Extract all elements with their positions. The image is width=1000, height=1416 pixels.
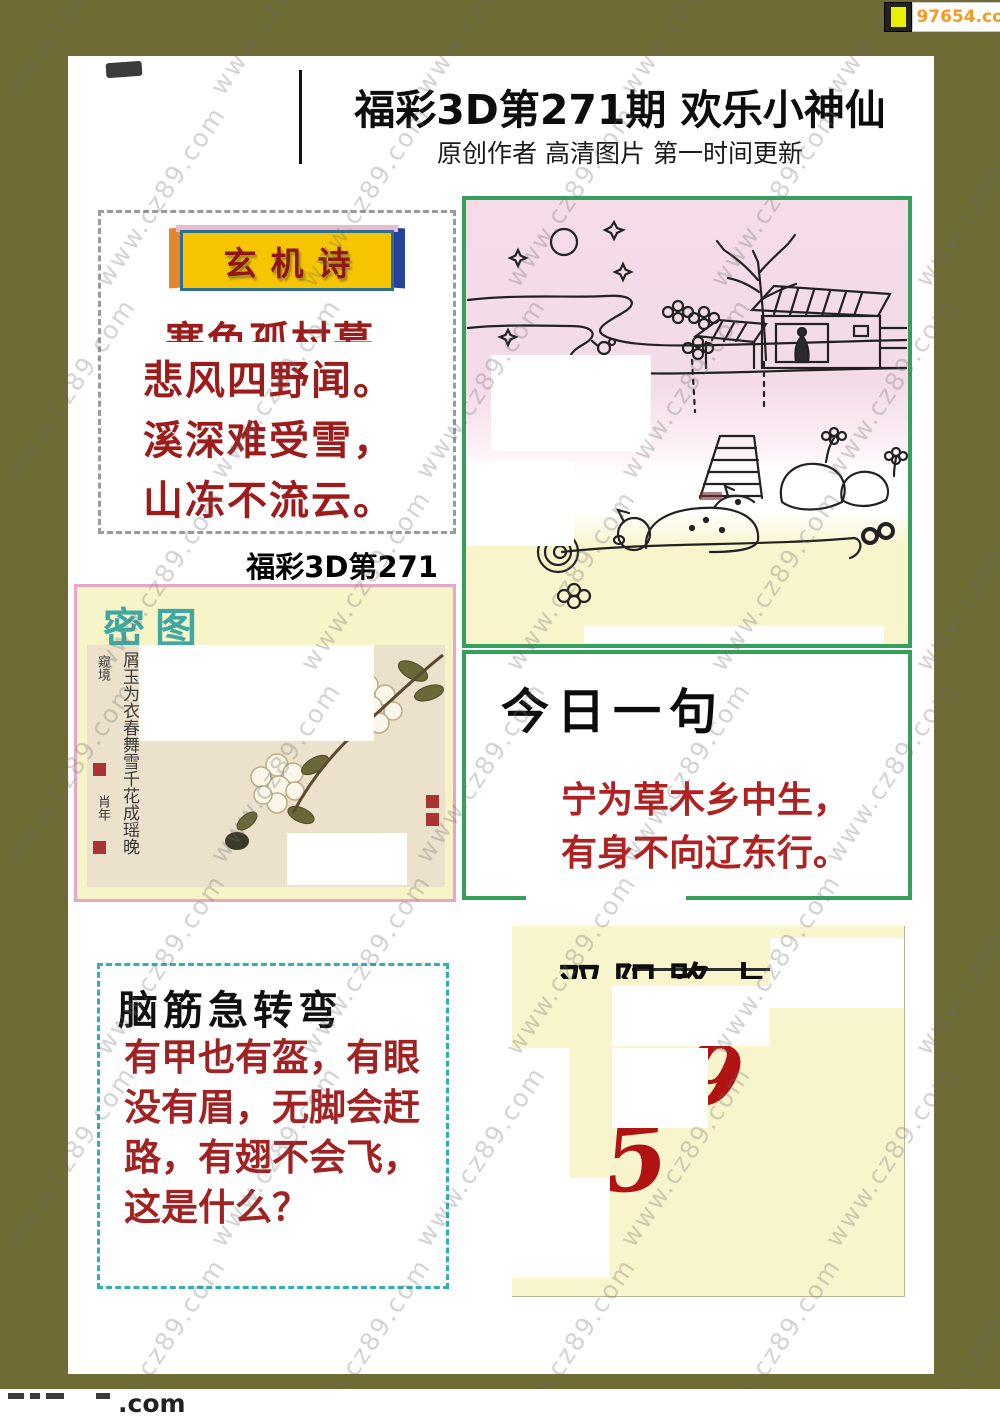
inscription-small: 窥境 <box>93 655 112 681</box>
sentence-line-2: 有身不向辽东行。 <box>561 827 849 880</box>
poem-line-2: 悲风四野闻。 <box>143 358 443 404</box>
censor-patch <box>526 890 686 902</box>
red-seal <box>93 763 106 776</box>
censor-patch <box>512 1048 570 1178</box>
poem-line-3: 溪深难受雪， <box>143 418 443 464</box>
red-seal <box>426 813 439 826</box>
inscription-side: 肖年 <box>93 795 112 821</box>
mystery-poem-panel: 玄机诗 寒色孤村暮 悲风四野闻。 溪深难受雪， 山冻不流云。 <box>98 210 456 534</box>
yellow-square-icon <box>891 7 906 27</box>
censor-patch <box>466 462 574 546</box>
mystery-poem-title: 玄机诗 <box>210 237 365 285</box>
poem-line-1-clipped: 寒色孤村暮 <box>165 309 443 342</box>
today-sentence-panel: 今日一句 宁为草木乡中生， 有身不向辽东行。 <box>462 650 912 900</box>
today-sentence-text: 宁为草木乡中生， 有身不向辽东行。 <box>561 774 849 880</box>
drawing-panel <box>462 196 912 648</box>
censor-patch <box>584 626 884 644</box>
censor-patch <box>612 986 770 1046</box>
footer-domain-suffix: .com <box>118 1389 186 1416</box>
banner-face: 玄机诗 <box>180 230 394 291</box>
brain-teaser-title: 脑筋急转弯 <box>118 978 343 1036</box>
sentence-line-1: 宁为草木乡中生， <box>561 774 849 827</box>
censor-patch <box>770 938 904 1008</box>
flower-painting: 窥境 屑玉为衣春舞雪千花成瑶晚 肖年 <box>87 645 445 887</box>
today-sentence-title: 今日一句 <box>501 672 725 742</box>
censor-patch <box>612 1048 708 1128</box>
page-title: 福彩3D第271期 欢乐小神仙 <box>310 76 930 136</box>
red-seal <box>426 795 439 808</box>
secret-picture-panel: 密图 <box>74 584 456 902</box>
poem-line-4: 山冻不流云。 <box>143 478 443 524</box>
censor-patch <box>287 833 407 885</box>
badge-url[interactable]: 97654.com <box>912 2 1000 32</box>
brain-teaser-text: 有甲也有盔，有眼没有眉，无脚会赶路，有翅不会飞，这是什么？ <box>124 1032 424 1232</box>
badge-icon-box <box>884 2 912 32</box>
censor-patch <box>512 1178 610 1278</box>
censor-patch <box>491 355 651 451</box>
ink-smudge <box>106 61 143 78</box>
clipped-text-fragment <box>30 1393 40 1399</box>
clipped-text-fragment <box>46 1393 64 1399</box>
clipped-text-fragment <box>96 1393 110 1399</box>
footer-strip: .com <box>0 1389 1000 1416</box>
page-subtitle: 原创作者 高清图片 第一时间更新 <box>310 134 930 170</box>
mystery-poem-text: 寒色孤村暮 悲风四野闻。 溪深难受雪， 山冻不流云。 <box>143 309 443 538</box>
red-seal <box>93 841 106 854</box>
site-badge[interactable]: 97654.com <box>884 2 1000 32</box>
brain-teaser-panel: 脑筋急转弯 有甲也有盔，有眼没有眉，无脚会赶路，有翅不会飞，这是什么？ <box>97 963 449 1289</box>
censor-patch <box>139 645 374 741</box>
numbers-panel: 双阳路上一 9 5 <box>512 926 905 1297</box>
clipped-text-fragment <box>8 1393 24 1399</box>
header-divider-line <box>299 70 302 164</box>
lottery-sheet: 福彩3D第271期 欢乐小神仙 原创作者 高清图片 第一时间更新 玄机诗 寒色孤… <box>0 0 1000 1416</box>
mystery-poem-banner: 玄机诗 <box>169 225 405 291</box>
